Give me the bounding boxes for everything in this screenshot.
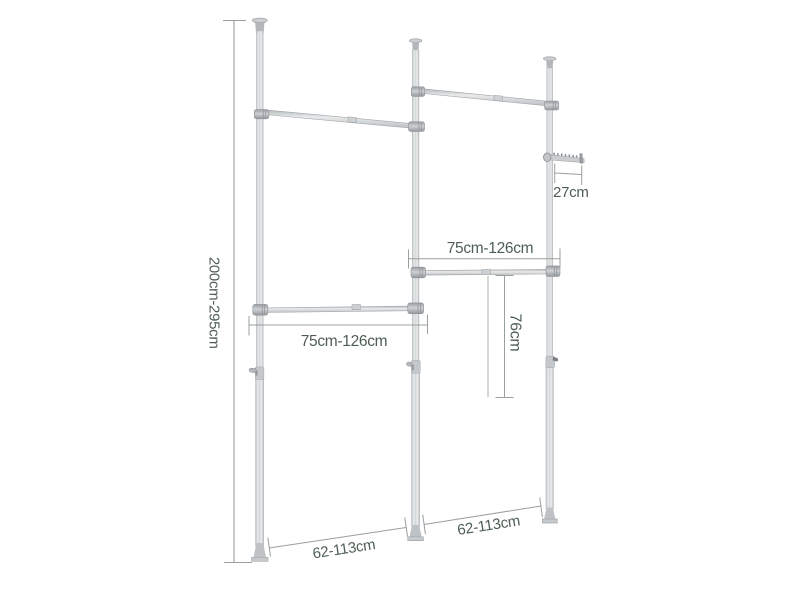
svg-text:200cm-295cm: 200cm-295cm xyxy=(205,257,222,349)
svg-text:76cm: 76cm xyxy=(506,314,523,352)
svg-text:75cm-126cm: 75cm-126cm xyxy=(301,333,388,350)
svg-text:27cm: 27cm xyxy=(553,184,588,201)
svg-text:75cm-126cm: 75cm-126cm xyxy=(447,240,534,257)
